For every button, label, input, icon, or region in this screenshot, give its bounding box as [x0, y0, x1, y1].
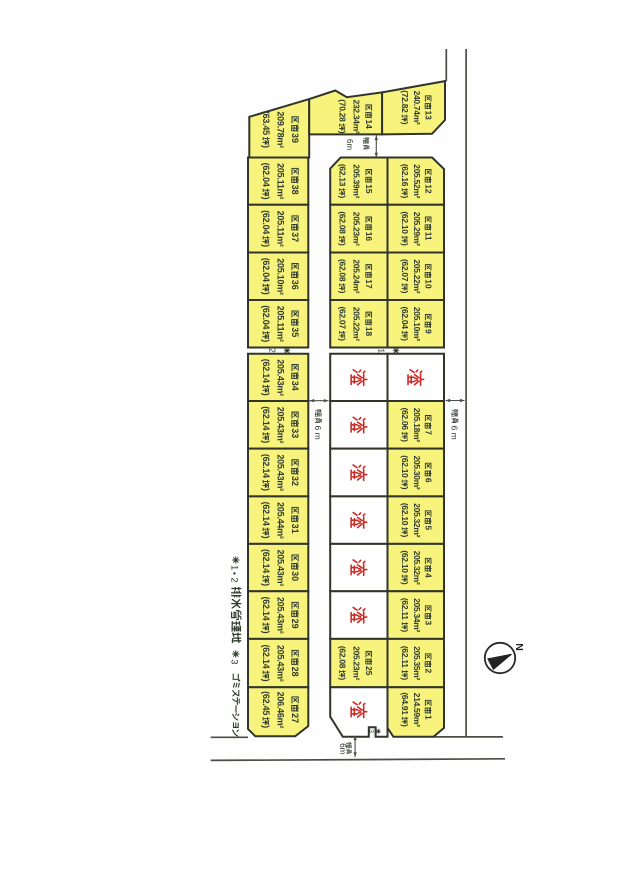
svg-text:33: 33: [290, 428, 300, 438]
svg-text:12: 12: [423, 184, 433, 194]
svg-text:): ): [400, 629, 410, 632]
svg-text:(62.16: (62.16: [400, 164, 410, 187]
svg-text:3: 3: [423, 621, 433, 626]
svg-text:): ): [261, 292, 271, 295]
svg-text:1: 1: [423, 715, 433, 720]
svg-text:): ): [338, 338, 348, 341]
svg-text:(62.14: (62.14: [261, 502, 271, 526]
svg-text:28: 28: [290, 667, 300, 677]
svg-text:205.35m²: 205.35m²: [412, 646, 422, 680]
svg-text:): ): [400, 535, 410, 538]
svg-text:240.74m²: 240.74m²: [412, 91, 422, 125]
svg-text:): ): [400, 291, 410, 294]
svg-text:5: 5: [423, 526, 433, 531]
svg-text:17: 17: [364, 279, 374, 289]
svg-text:(62.10: (62.10: [400, 503, 410, 526]
svg-text:205.52m²: 205.52m²: [412, 164, 422, 198]
svg-text:31: 31: [290, 524, 300, 534]
svg-text:): ): [261, 725, 271, 728]
svg-text:(62.07: (62.07: [400, 259, 410, 282]
svg-text:(62.06: (62.06: [400, 408, 410, 431]
svg-text:205.32m²: 205.32m²: [412, 551, 422, 585]
svg-text:36: 36: [290, 280, 300, 290]
svg-text:(62.04: (62.04: [400, 307, 410, 330]
svg-text:205.34m²: 205.34m²: [412, 598, 422, 632]
svg-text:): ): [400, 439, 410, 442]
svg-text:): ): [261, 440, 271, 443]
svg-text:): ): [400, 724, 410, 727]
svg-text:6 m: 6 m: [450, 426, 460, 440]
svg-text:(63.45: (63.45: [261, 111, 271, 135]
svg-text:205.24m²: 205.24m²: [351, 259, 361, 293]
svg-text:29: 29: [290, 619, 300, 629]
svg-text:): ): [338, 131, 348, 134]
svg-text:205.18m²: 205.18m²: [412, 408, 422, 442]
svg-text:37: 37: [290, 232, 300, 242]
svg-text:(62.04: (62.04: [261, 163, 271, 187]
svg-text:3: 3: [229, 659, 240, 664]
svg-text:(62.11: (62.11: [400, 646, 410, 668]
svg-text:): ): [400, 338, 410, 341]
svg-text:27: 27: [290, 713, 300, 723]
svg-text:205.32m²: 205.32m²: [412, 503, 422, 537]
svg-text:): ): [338, 677, 348, 680]
svg-text:): ): [261, 679, 271, 682]
svg-text:205.43m²: 205.43m²: [276, 454, 286, 491]
svg-text:15: 15: [364, 184, 374, 194]
svg-text:): ): [400, 122, 410, 125]
svg-text:): ): [400, 196, 410, 199]
svg-text:205.11m²: 205.11m²: [276, 211, 286, 247]
svg-text:6m: 6m: [345, 139, 354, 150]
svg-text:): ): [261, 339, 271, 342]
svg-text:16: 16: [364, 232, 374, 242]
svg-text:205.23m²: 205.23m²: [351, 212, 361, 246]
svg-text:6: 6: [423, 478, 433, 483]
svg-text:): ): [400, 243, 410, 246]
svg-text:): ): [338, 196, 348, 199]
svg-text:6m: 6m: [338, 743, 347, 754]
svg-text:214.59m²: 214.59m²: [412, 693, 422, 727]
svg-text:(62.08: (62.08: [338, 646, 348, 669]
svg-text:): ): [400, 582, 410, 585]
svg-text:): ): [338, 291, 348, 294]
svg-text:10: 10: [423, 279, 433, 289]
svg-text:205.43m²: 205.43m²: [276, 550, 286, 587]
svg-text:7: 7: [423, 430, 433, 435]
svg-text:(62.04: (62.04: [261, 258, 271, 282]
svg-text:): ): [261, 631, 271, 634]
svg-text:209.78m²: 209.78m²: [276, 111, 286, 148]
svg-text:(62.14: (62.14: [261, 454, 271, 478]
svg-text:205.11m²: 205.11m²: [276, 306, 286, 342]
svg-text:(62.14: (62.14: [261, 549, 271, 573]
svg-text:(62.08: (62.08: [338, 211, 348, 234]
svg-text:(62.14: (62.14: [261, 406, 271, 430]
svg-text:205.43m²: 205.43m²: [276, 407, 286, 444]
svg-text:205.44m²: 205.44m²: [276, 502, 286, 539]
svg-text:205.10m²: 205.10m²: [412, 307, 422, 341]
svg-text:): ): [261, 488, 271, 491]
svg-text:): ): [400, 677, 410, 680]
svg-text:(70.28: (70.28: [338, 99, 348, 122]
svg-text:3: 3: [368, 729, 375, 733]
svg-text:205.10m²: 205.10m²: [276, 258, 286, 295]
svg-text:205.43m²: 205.43m²: [276, 597, 286, 634]
svg-text:(62.04: (62.04: [261, 305, 271, 329]
svg-text:205.30m²: 205.30m²: [412, 456, 422, 490]
svg-text:(62.10: (62.10: [400, 550, 410, 573]
svg-text:25: 25: [364, 666, 374, 676]
svg-text:): ): [261, 197, 271, 200]
svg-text:): ): [261, 244, 271, 247]
svg-text:1: 1: [377, 349, 386, 354]
svg-text:(62.10: (62.10: [400, 455, 410, 478]
svg-text:): ): [261, 583, 271, 586]
svg-text:11: 11: [423, 232, 433, 241]
svg-text:(62.14: (62.14: [261, 359, 271, 383]
svg-text:(62.10: (62.10: [400, 211, 410, 234]
svg-text:(72.82: (72.82: [400, 90, 410, 113]
svg-text:): ): [400, 487, 410, 490]
svg-text:(64.91: (64.91: [400, 692, 410, 715]
svg-text:): ): [261, 536, 271, 539]
svg-text:(62.13: (62.13: [338, 164, 348, 187]
svg-text:232.34m²: 232.34m²: [351, 100, 361, 134]
svg-text:205.23m²: 205.23m²: [351, 646, 361, 680]
svg-text:14: 14: [364, 120, 374, 130]
svg-text:206.46m²: 206.46m²: [276, 692, 286, 729]
svg-text:35: 35: [290, 327, 300, 337]
svg-text:32: 32: [290, 476, 300, 486]
svg-text:205.43m²: 205.43m²: [276, 645, 286, 682]
svg-text:(62.45: (62.45: [261, 691, 271, 715]
svg-text:2: 2: [423, 669, 433, 674]
svg-text:205.11m²: 205.11m²: [276, 163, 286, 199]
svg-text:205.39m²: 205.39m²: [351, 164, 361, 198]
svg-text:18: 18: [364, 327, 374, 337]
svg-text:(62.08: (62.08: [338, 259, 348, 282]
svg-text:6 m: 6 m: [313, 426, 323, 440]
svg-text:N: N: [513, 643, 525, 651]
svg-text:38: 38: [290, 185, 300, 195]
svg-text:30: 30: [290, 571, 300, 581]
svg-text:(62.14: (62.14: [261, 597, 271, 621]
svg-text:205.22m²: 205.22m²: [412, 259, 422, 293]
svg-text:): ): [261, 145, 271, 148]
svg-text:34: 34: [290, 381, 300, 391]
svg-text:): ): [338, 243, 348, 246]
svg-text:205.29m²: 205.29m²: [412, 212, 422, 246]
svg-text:(62.07: (62.07: [338, 307, 348, 330]
svg-text:): ): [261, 393, 271, 396]
svg-text:(62.11: (62.11: [400, 598, 410, 620]
svg-text:4: 4: [423, 573, 433, 578]
svg-text:13: 13: [423, 111, 433, 121]
svg-text:39: 39: [290, 133, 300, 143]
svg-text:9: 9: [423, 329, 433, 334]
svg-text:(62.14: (62.14: [261, 645, 271, 669]
svg-text:2: 2: [229, 577, 240, 582]
svg-text:205.22m²: 205.22m²: [351, 307, 361, 341]
svg-text:(62.04: (62.04: [261, 210, 271, 234]
svg-text:2: 2: [268, 348, 277, 353]
svg-text:205.43m²: 205.43m²: [276, 359, 286, 396]
svg-text:1: 1: [229, 565, 240, 570]
